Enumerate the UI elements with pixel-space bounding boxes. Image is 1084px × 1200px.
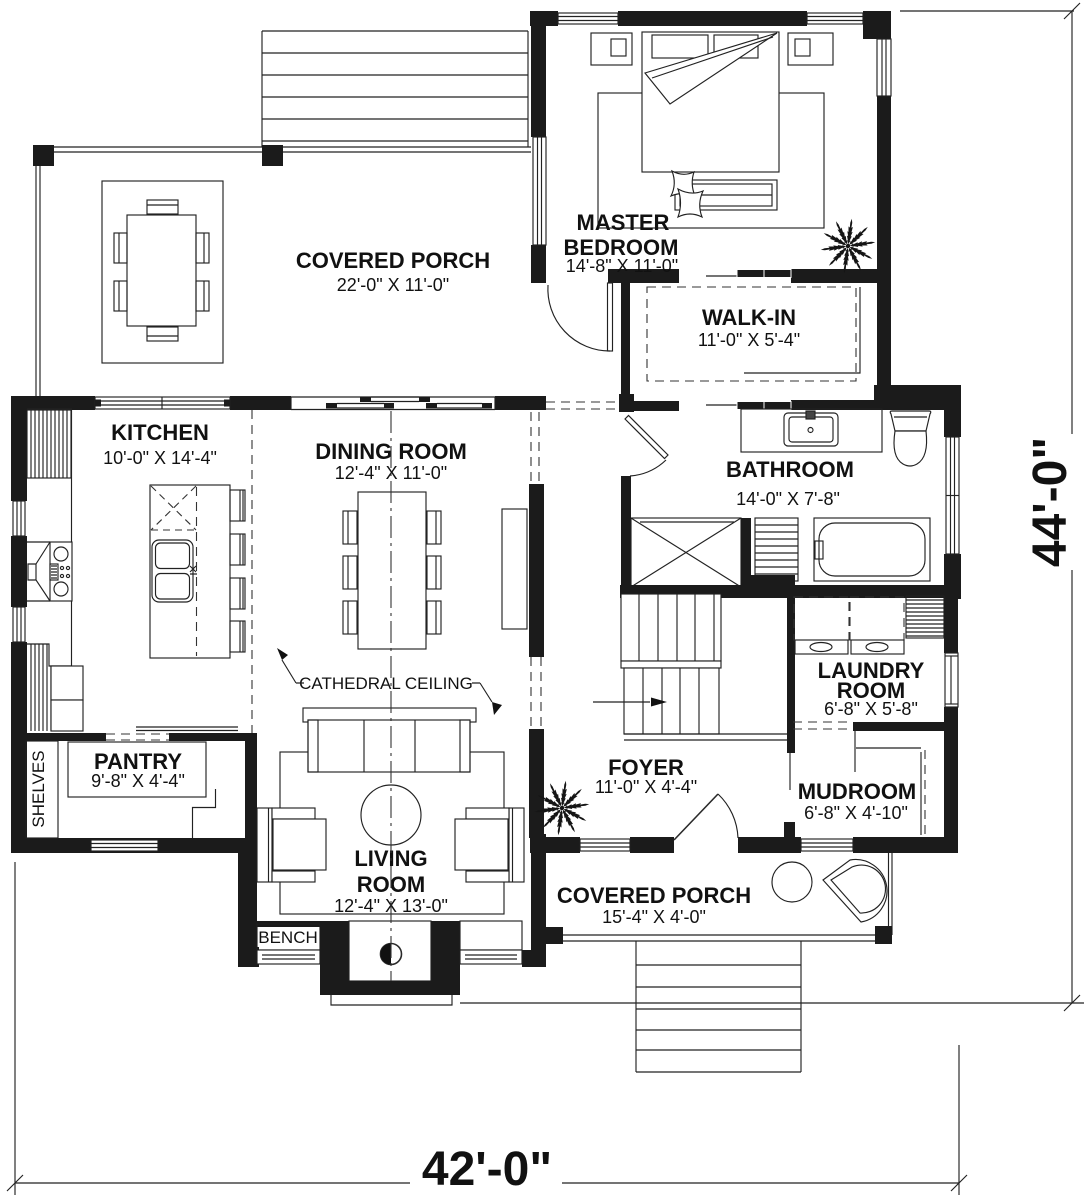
svg-text:11'-0" X 4'-4": 11'-0" X 4'-4" [595, 777, 697, 797]
svg-text:COVERED PORCH: COVERED PORCH [557, 883, 751, 908]
svg-text:KITCHEN: KITCHEN [111, 420, 209, 445]
svg-text:CATHEDRAL CEILING: CATHEDRAL CEILING [299, 674, 473, 693]
svg-text:6'-8" X 4'-10": 6'-8" X 4'-10" [804, 803, 908, 823]
svg-text:BENCH: BENCH [258, 928, 318, 947]
svg-text:BATHROOM: BATHROOM [726, 457, 854, 482]
svg-text:42'-0": 42'-0" [422, 1143, 552, 1196]
svg-text:44'-0": 44'-0" [1024, 437, 1077, 567]
svg-text:WALK-IN: WALK-IN [702, 305, 796, 330]
svg-text:15'-4" X 4'-0": 15'-4" X 4'-0" [602, 907, 706, 927]
svg-text:9'-8" X 4'-4": 9'-8" X 4'-4" [91, 771, 185, 791]
svg-text:COVERED PORCH: COVERED PORCH [296, 248, 490, 273]
svg-text:11'-0" X 5'-4": 11'-0" X 5'-4" [698, 330, 800, 350]
svg-text:SHELVES: SHELVES [29, 750, 48, 827]
svg-text:MASTER: MASTER [577, 210, 670, 235]
svg-text:14'-0" X 7'-8": 14'-0" X 7'-8" [736, 489, 840, 509]
svg-text:MUDROOM: MUDROOM [798, 779, 917, 804]
svg-text:10'-0" X 14'-4": 10'-0" X 14'-4" [103, 448, 217, 468]
svg-text:22'-0" X 11'-0": 22'-0" X 11'-0" [337, 275, 449, 295]
svg-text:6'-8" X 5'-8": 6'-8" X 5'-8" [824, 699, 918, 719]
